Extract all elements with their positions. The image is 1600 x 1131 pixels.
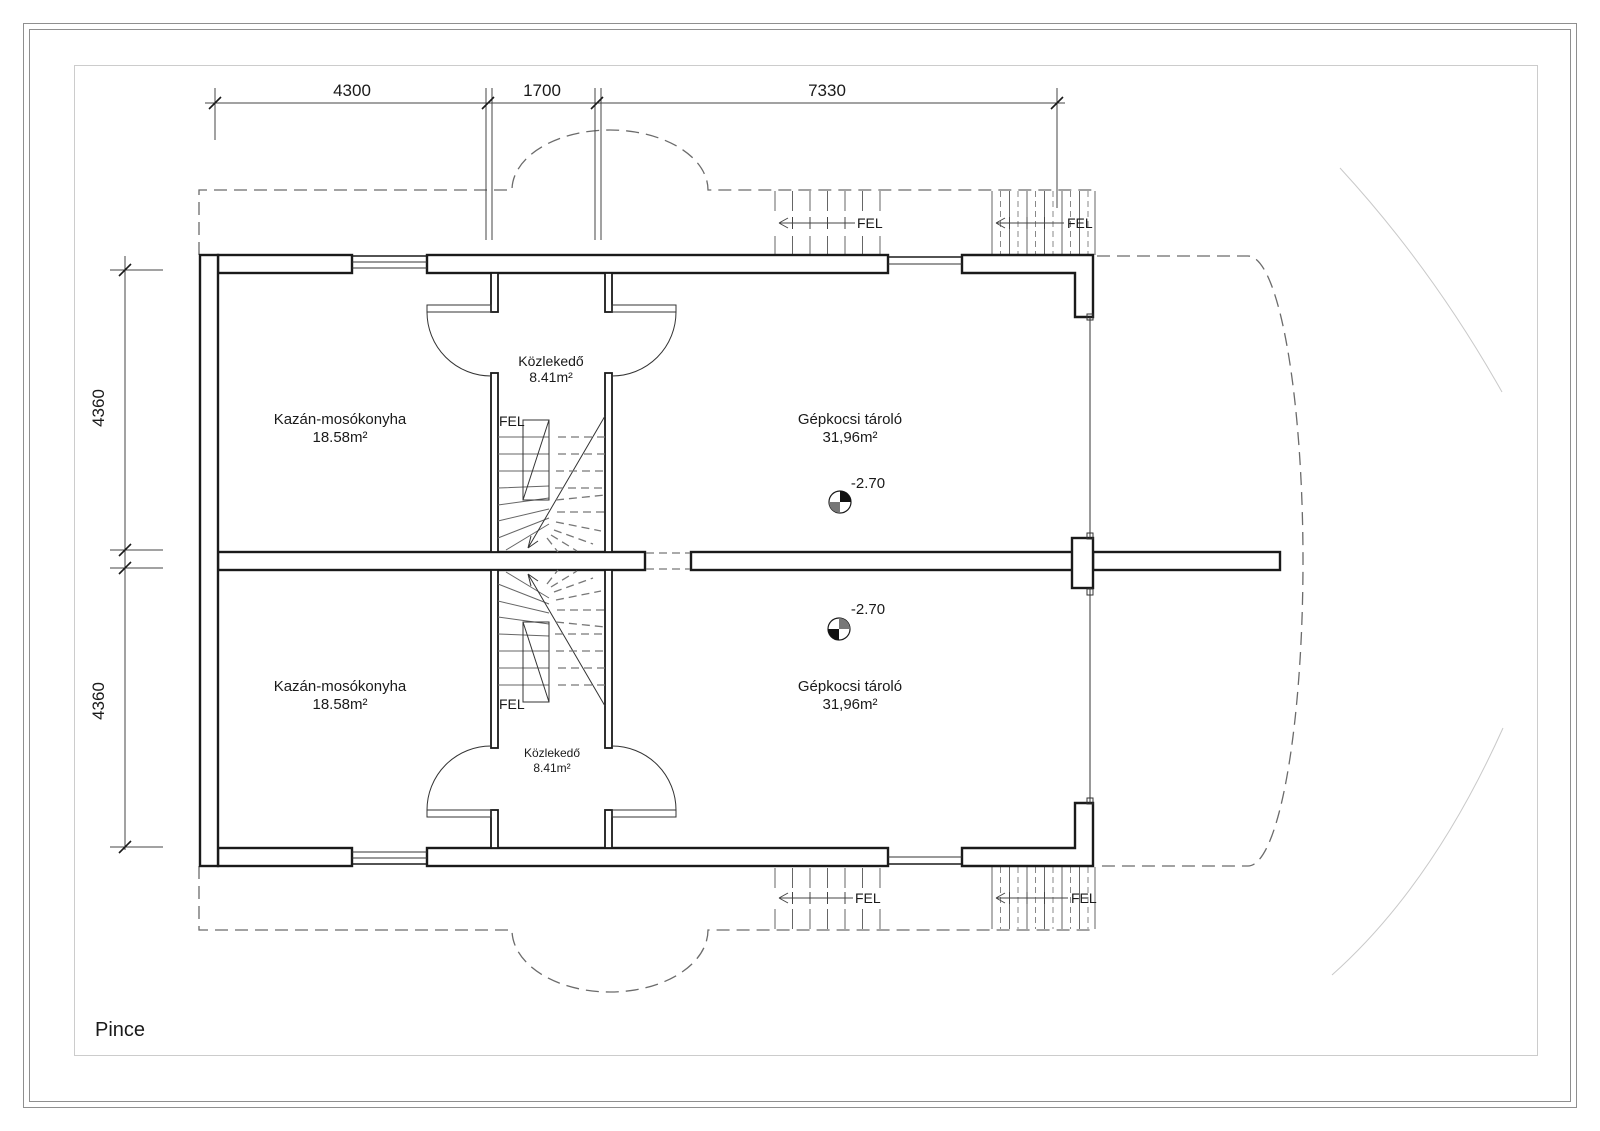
door-bottom-right [612, 746, 676, 817]
stair-up-label: FEL [1071, 890, 1097, 906]
exterior-stair-top-right: FEL [992, 191, 1095, 255]
room-area: 31,96m² [822, 696, 877, 713]
dim-value: 7330 [808, 81, 846, 100]
room-name: Gépkocsi tároló [798, 678, 902, 695]
level-value: -2.70 [851, 601, 885, 618]
party-wall [218, 552, 645, 570]
room-area: 8.41m² [533, 761, 570, 775]
room-area: 18.58m² [312, 429, 367, 446]
window-top-left-room [352, 255, 427, 273]
interior-stair-top-unit [498, 416, 605, 552]
door-top-right [612, 305, 676, 376]
room-name: Gépkocsi tároló [798, 411, 902, 428]
dim-value: 4360 [89, 682, 108, 720]
door-top-left [427, 305, 491, 376]
party-wall [691, 552, 1073, 570]
opening-bottom-center [888, 848, 962, 866]
exterior-stair-top-left: FEL [775, 191, 883, 255]
top-dimension-line: 4300 1700 7330 [205, 81, 1065, 240]
stair-up-label: FEL [855, 890, 881, 906]
stair-up-label: FEL [857, 215, 883, 231]
bottom-right-pillar [962, 803, 1093, 866]
room-name: Kazán-mosókonyha [274, 678, 407, 695]
page-title: Pince [95, 1019, 145, 1041]
dim-value: 1700 [523, 81, 561, 100]
opening-top-center [888, 255, 962, 273]
interior-stair-bottom-unit [498, 570, 605, 706]
room-name: Közlekedő [518, 353, 584, 369]
level-marker-top-garage: -2.70 [829, 475, 885, 513]
site-curve-arcs [1332, 168, 1503, 975]
stair-up-label: FEL [1067, 215, 1093, 231]
level-marker-bottom-garage: -2.70 [828, 601, 885, 640]
exterior-stair-bottom-left: FEL [775, 868, 881, 929]
room-name: Közlekedő [524, 746, 580, 760]
top-right-pillar [962, 255, 1093, 317]
cross-pillar [1072, 538, 1093, 588]
building-walls [200, 255, 1280, 866]
party-wall-garden [1093, 552, 1280, 570]
left-dimension-line: 4360 4360 [89, 256, 163, 853]
drawing-sheet: FEL FEL FEL FEL [0, 0, 1600, 1131]
room-area: 8.41m² [529, 369, 573, 385]
room-name: Kazán-mosókonyha [274, 411, 407, 428]
floor-plan-canvas: FEL FEL FEL FEL [0, 0, 1600, 1131]
stair-up-label: FEL [499, 413, 525, 429]
room-area: 31,96m² [822, 429, 877, 446]
door-bottom-left [427, 746, 491, 817]
dim-value: 4300 [333, 81, 371, 100]
stair-up-label: FEL [499, 696, 525, 712]
room-area: 18.58m² [312, 696, 367, 713]
exterior-stair-bottom-right: FEL [992, 867, 1097, 929]
party-wall-opening [645, 552, 691, 570]
dim-value: 4360 [89, 389, 108, 427]
level-value: -2.70 [851, 475, 885, 492]
window-bottom-left-room [352, 848, 427, 866]
